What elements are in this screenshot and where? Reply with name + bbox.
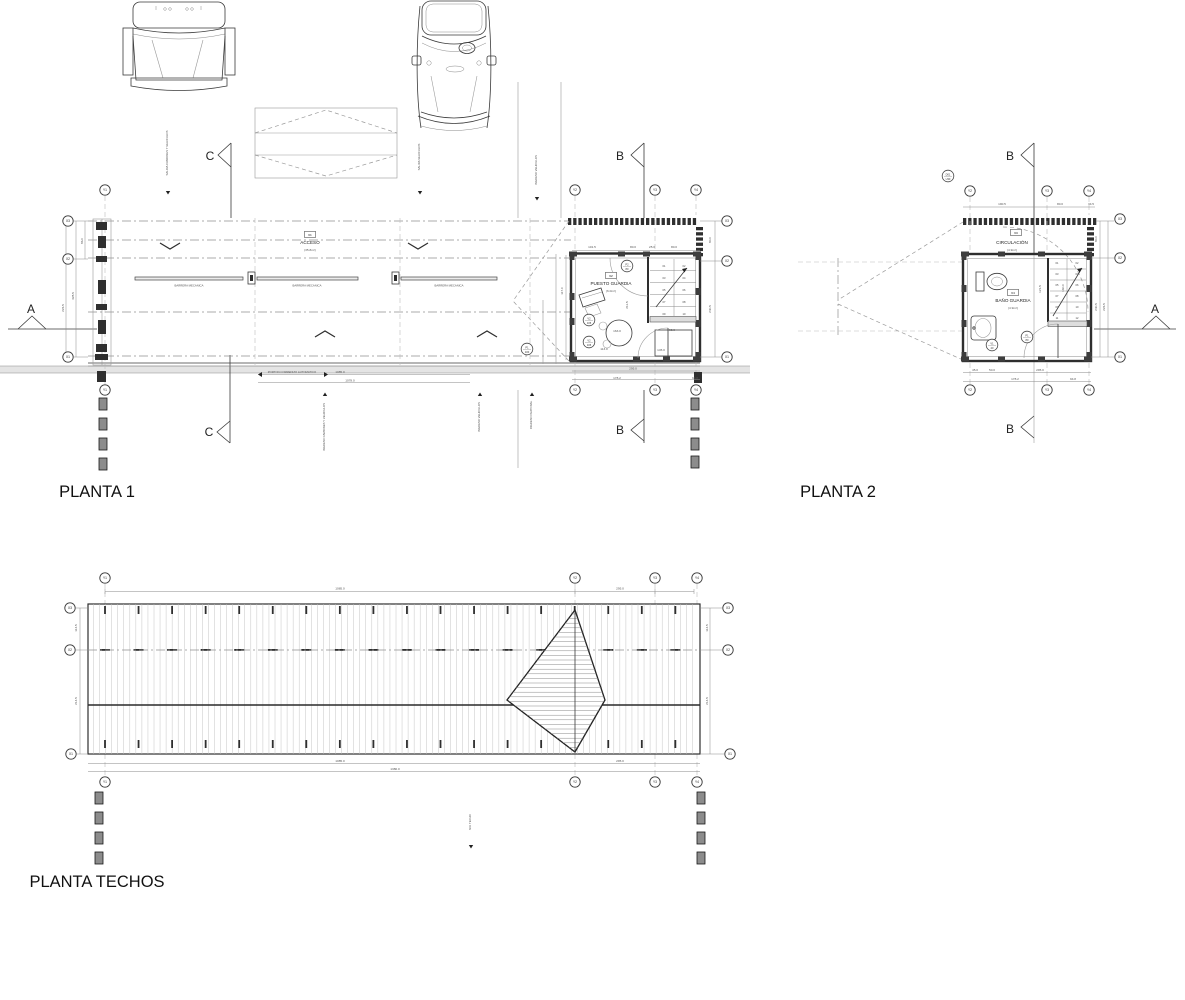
hatch-block (1072, 218, 1075, 225)
planta1-title: PLANTA 1 (59, 483, 135, 501)
hatch-block (636, 218, 639, 225)
dimension-text: 178.2 (1011, 377, 1019, 381)
dimension-text: 226.5 (61, 304, 65, 312)
hatch-block (620, 218, 623, 225)
section-letter: C (205, 425, 214, 439)
stair-step-number: 07 (1056, 294, 1059, 298)
hatch-block (599, 218, 602, 225)
roof-tick (205, 606, 207, 614)
fixture-tag-size: 105 (587, 343, 592, 347)
hatch-block (1067, 218, 1070, 225)
grid-bubble-label: Y1 (103, 780, 107, 784)
grid-bubble-label: X1 (728, 752, 732, 756)
dimension-text: 80.0 (1094, 236, 1098, 242)
fixture-tag-code: D01 (946, 172, 951, 176)
grid-bubble-label: X1 (66, 355, 70, 359)
grid-bubble-label: X3 (725, 219, 729, 223)
dimension-text: 1085.0 (335, 370, 345, 374)
roof-tick (171, 606, 173, 614)
hatch-block (641, 218, 644, 225)
hatch-block (979, 218, 982, 225)
label-text: BARRERA MECANICA (293, 284, 322, 288)
grid-bubble-label: Y3 (653, 576, 657, 580)
hatch-block (610, 218, 613, 225)
hatch-block (696, 237, 703, 240)
dimension-text: 94.8 (692, 376, 698, 380)
grid-bubble-label: Y4 (694, 388, 698, 392)
flow-label: INGRESO VEHICULOS (477, 402, 481, 432)
section-letter: B (1006, 149, 1014, 163)
room-number: 01 (308, 233, 312, 237)
hatch-block (1087, 243, 1094, 246)
label-text: PORTON CORREDIZO AUTOMATICO (268, 370, 317, 374)
grid-bubble-label: Y4 (695, 780, 699, 784)
fixture-tag-code: V1 (990, 341, 994, 345)
hatch-block (1046, 218, 1049, 225)
dimension-text: 190.5 (998, 202, 1006, 206)
grid-bubble-label: Y1 (103, 388, 107, 392)
roof-tick (138, 606, 140, 614)
dimension-text: 295.0 (616, 587, 624, 591)
grid-bubble-label: X3 (66, 219, 70, 223)
dimension-text: 226.5 (1102, 303, 1106, 311)
roof-bollards (95, 792, 705, 864)
grid-bubble-label: Y3 (653, 188, 657, 192)
hatch-block (672, 218, 675, 225)
hatch-block (1051, 218, 1054, 225)
grid-bubble-label: Y2 (573, 388, 577, 392)
fixture-tag-code: P2 (625, 262, 629, 266)
dimension-text: 295.0 (629, 367, 637, 371)
hatch-block (1010, 218, 1013, 225)
hatch-block (1087, 227, 1094, 230)
hatch-block (1087, 248, 1094, 251)
roof-tick (406, 606, 408, 614)
hatch-block (667, 218, 670, 225)
section-markers (8, 143, 1176, 443)
stair-step-number: 08 (683, 300, 686, 304)
roof-tick (339, 740, 341, 748)
roof-tick (440, 606, 442, 614)
dimension-text: 114.5 (705, 624, 709, 632)
dimension-text: 178.2 (613, 376, 621, 380)
fixture-tag-code: V2 (587, 316, 591, 320)
grid-bubble-label: Y2 (573, 188, 577, 192)
flow-label: INGRESO PEATONAL (529, 400, 533, 429)
section-letter: C (206, 149, 215, 163)
hatch-block (696, 227, 703, 230)
hatch-block (984, 218, 987, 225)
stair-step-number: 03 (663, 276, 666, 280)
dimension-text: 1085.0 (335, 759, 345, 763)
hatch-block (1062, 218, 1065, 225)
roof-tick (305, 740, 307, 748)
dimension-text: 50.0 (989, 368, 995, 372)
dimension-text: 80.0 (708, 237, 712, 243)
dimension-text: 240.5 (708, 305, 712, 313)
label-text: BARRERA MECANICA (435, 284, 464, 288)
grid-bubble-label: Y4 (694, 188, 698, 192)
label-text: BARRERA MECANICA (175, 284, 204, 288)
roof-tick (171, 740, 173, 748)
flow-arrow-icon (469, 845, 473, 849)
flow-label: INGRESO VEHICULOS (534, 155, 538, 185)
hatch-block (1031, 218, 1034, 225)
gate-canopy-detail (255, 108, 397, 178)
stair-step-number: 06 (1076, 283, 1079, 287)
stair-step-number: 06 (683, 288, 686, 292)
grid-bubble-label: Y3 (653, 388, 657, 392)
dimension-text: 101.5 (588, 245, 596, 249)
hatch-block (1087, 237, 1094, 240)
hatch-block (1025, 218, 1028, 225)
roof-tick (104, 606, 106, 614)
hatch-block (1087, 232, 1094, 235)
dimension-text: 295.0 (1036, 368, 1044, 372)
section-letter: A (27, 302, 35, 316)
dimension-text: 328.5 (71, 292, 75, 300)
roof-tick (440, 740, 442, 748)
roof-tick (473, 740, 475, 748)
lane-chevrons (160, 243, 497, 337)
dimension-text: 25.0 (649, 245, 655, 249)
dimension-text: 1078.0 (345, 379, 355, 383)
roof-tick (607, 606, 609, 614)
room-number: 03 (1014, 231, 1018, 235)
dimension-text: 121.5 (1038, 285, 1042, 293)
stair-step-number: 01 (1056, 261, 1059, 265)
roof-tick (138, 740, 140, 748)
label-text: ACCESO (300, 240, 320, 245)
flow-label: INGRESO CAMIONES Y VEHICULOS (322, 403, 326, 451)
roof-tick (339, 606, 341, 614)
label-text: (4.9m²) (1008, 306, 1018, 310)
room-number: 02 (609, 274, 613, 278)
dimension-text: 113.0 (600, 347, 608, 351)
stair-step-number: 10 (1076, 305, 1079, 309)
hatch-block (662, 218, 665, 225)
hatch-block (1093, 218, 1096, 225)
grid-bubble-label: Y4 (695, 576, 699, 580)
dimension-text: 95.0 (669, 328, 675, 332)
room-number: 04 (1011, 291, 1015, 295)
section-letter: B (1006, 422, 1014, 436)
stair-step-number: 09 (663, 312, 666, 316)
grid-bubble-label: X2 (725, 259, 729, 263)
planta2-title: PLANTA 2 (800, 483, 876, 501)
planta-techos-title: PLANTA TECHOS (29, 873, 164, 891)
flow-label: SALIDA VEHICULOS (417, 144, 421, 171)
roof-tick (238, 740, 240, 748)
grid-bubble-label: Y3 (1045, 189, 1049, 193)
stair-step-number: 04 (683, 276, 686, 280)
grid-bubble-label: X1 (69, 752, 73, 756)
hatch-block (963, 218, 966, 225)
fixture-tag-code: V2 (587, 338, 591, 342)
dimension-text: 1085.0 (335, 587, 345, 591)
grid-bubble-label: Y2 (968, 189, 972, 193)
roof-tick (507, 740, 509, 748)
grid-bubble-label: X2 (66, 257, 70, 261)
dimension-text: 1380.0 (390, 767, 400, 771)
grid-bubble-label: Y1 (103, 188, 107, 192)
hatch-block (994, 218, 997, 225)
flow-arrow-icons (166, 191, 539, 396)
planta2-drawing (798, 197, 1114, 384)
grid-bubble-label: Y2 (968, 388, 972, 392)
roof-tick (272, 740, 274, 748)
hatch-block (696, 232, 703, 235)
roof-tick (272, 606, 274, 614)
road-band (0, 366, 750, 373)
flow-label: NIV. TECHO (468, 813, 472, 830)
fixture-tags: P280V2105V2105P1100P180V140D01U30 (521, 170, 1033, 355)
hatch-block (656, 218, 659, 225)
fixture-tag-code: P1 (1025, 333, 1029, 337)
dimension-text: 214.5 (705, 697, 709, 705)
hatch-block (999, 218, 1002, 225)
hatch-block (594, 218, 597, 225)
hatch-block (651, 218, 654, 225)
section-letter: B (616, 423, 624, 437)
flow-label: SALIDA CAMIONES Y VEHICULOS (165, 130, 169, 175)
label-text: (35.8m²) (304, 248, 316, 252)
section-letter: A (1151, 302, 1159, 316)
section-letter: B (616, 149, 624, 163)
grid-bubble-label: Y1 (103, 576, 107, 580)
grid-bubble-label: X3 (1118, 217, 1122, 221)
dimension-text: 163.0 (613, 329, 621, 333)
roof-tick (373, 740, 375, 748)
hatch-block (630, 218, 633, 225)
roof-tick (641, 606, 643, 614)
hatch-block (1041, 218, 1044, 225)
hatch-block (625, 218, 628, 225)
grid-bubble-label: X2 (1118, 256, 1122, 260)
fixture-tag-size: 100 (525, 350, 530, 354)
roof-tick (205, 740, 207, 748)
guard-house-upper (961, 252, 1092, 362)
fixture-tag-code: P1 (525, 345, 529, 349)
hatch-block (615, 218, 618, 225)
stair-step-number: 02 (683, 264, 686, 268)
grid-bubble-label: Y2 (573, 576, 577, 580)
approach-road-lines (518, 82, 561, 468)
stair-step-number: 10 (683, 312, 686, 316)
hatch-block (973, 218, 976, 225)
hatch-block (693, 218, 696, 225)
roof-tick (104, 740, 106, 748)
roof-tick (305, 606, 307, 614)
roof-tick (607, 740, 609, 748)
hatch-block (688, 218, 691, 225)
hatch-block (578, 218, 581, 225)
hatch-block (1083, 218, 1086, 225)
roof-tick (674, 740, 676, 748)
hatch-block (589, 218, 592, 225)
architectural-drawing-sheet: Y1Y2Y3Y4Y1Y2Y3Y4X3X2X1X3X2X1Y2Y3Y4Y2Y3Y4… (0, 0, 1185, 1000)
hatch-block (677, 218, 680, 225)
dimension-text: 114.5 (74, 624, 78, 632)
dimension-text: 214.5 (74, 697, 78, 705)
dimension-text: 145.0 (657, 348, 665, 352)
hatch-block (1057, 218, 1060, 225)
grid-bubble-label: Y4 (1087, 388, 1091, 392)
dimension-text: 117.0 (560, 287, 564, 295)
dimension-text: 86.0 (80, 238, 84, 244)
hatch-block (682, 218, 685, 225)
hatch-block (1077, 218, 1080, 225)
dimension-text: 34.5 (1088, 202, 1094, 206)
stair-step-number: 08 (1076, 294, 1079, 298)
grid-bubble-label: X3 (68, 606, 72, 610)
roof-tick (507, 606, 509, 614)
stair-step-number: 11 (1056, 316, 1059, 320)
stair-step-number: 01 (663, 264, 666, 268)
canopy-hatch-band (963, 218, 1096, 256)
grid-bubble-label: X1 (725, 355, 729, 359)
label-text: BAÑO GUARDIA (995, 297, 1031, 303)
mechanical-barriers (135, 272, 497, 284)
stair-step-number: 02 (1076, 261, 1079, 265)
car-top-view (412, 1, 496, 131)
truck-top-view (123, 2, 235, 91)
dimension-text: 45.0 (972, 368, 978, 372)
label-text: CIRCULACIÓN (996, 239, 1028, 245)
fixture-tag-size: 105 (587, 321, 592, 325)
label-text: (6.0m²) (606, 289, 616, 293)
hatch-block (989, 218, 992, 225)
roof-tick (373, 606, 375, 614)
hatch-block (1005, 218, 1008, 225)
roof-tick (406, 740, 408, 748)
hatch-block (1036, 218, 1039, 225)
bollards (99, 372, 702, 470)
roof-tick (641, 740, 643, 748)
roof-tick (540, 606, 542, 614)
sliding-gate (93, 219, 111, 382)
stair-step-number: 07 (663, 300, 666, 304)
hatch-block (584, 218, 587, 225)
roof-tick (674, 606, 676, 614)
label-text: PUESTO GUARDIA (590, 281, 632, 286)
roof-tick (540, 740, 542, 748)
drawing-canvas: Y1Y2Y3Y4Y1Y2Y3Y4X3X2X1X3X2X1Y2Y3Y4Y2Y3Y4… (0, 0, 1185, 1000)
dimension-text: 80.0 (671, 245, 677, 249)
fixture-tag-size: U30 (946, 177, 951, 181)
hatch-block (1020, 218, 1023, 225)
dimension-text: 240.5 (1094, 303, 1098, 311)
dimension-text: 160.0 (1061, 284, 1065, 292)
stair-step-number: 05 (663, 288, 666, 292)
dimension-text: 295.0 (616, 759, 624, 763)
grid-bubble-label: X2 (726, 648, 730, 652)
roof-plan-drawing (76, 584, 724, 864)
grid-bubble-label: X1 (1118, 355, 1122, 359)
stair-step-number: 05 (1056, 283, 1059, 287)
hatch-block (573, 218, 576, 225)
hatch-block (646, 218, 649, 225)
stair-step-number: 12 (1076, 316, 1079, 320)
grid-bubble-label: X3 (726, 606, 730, 610)
dimension-text: 211.5 (625, 301, 629, 309)
grid-bubble-label: X2 (68, 648, 72, 652)
hatch-block (1015, 218, 1018, 225)
grid-bubble-label: Y2 (573, 780, 577, 784)
grid-bubble-label: Y4 (1087, 189, 1091, 193)
label-text: (4.9m²) (1007, 248, 1017, 252)
roof-tick (473, 606, 475, 614)
dimension-text: 80.0 (630, 245, 636, 249)
stair-step-number: 03 (1056, 272, 1059, 276)
hatch-block (696, 243, 703, 246)
grid-bubble-label: Y3 (653, 780, 657, 784)
grid-bubble-label: Y3 (1045, 388, 1049, 392)
room-number-boxes: 01020304 (305, 229, 1022, 295)
dimension-text: 80.0 (1057, 202, 1063, 206)
roof-tick (238, 606, 240, 614)
dimension-text: 94.8 (1070, 377, 1076, 381)
hatch-block (1088, 218, 1091, 225)
hatch-block (604, 218, 607, 225)
